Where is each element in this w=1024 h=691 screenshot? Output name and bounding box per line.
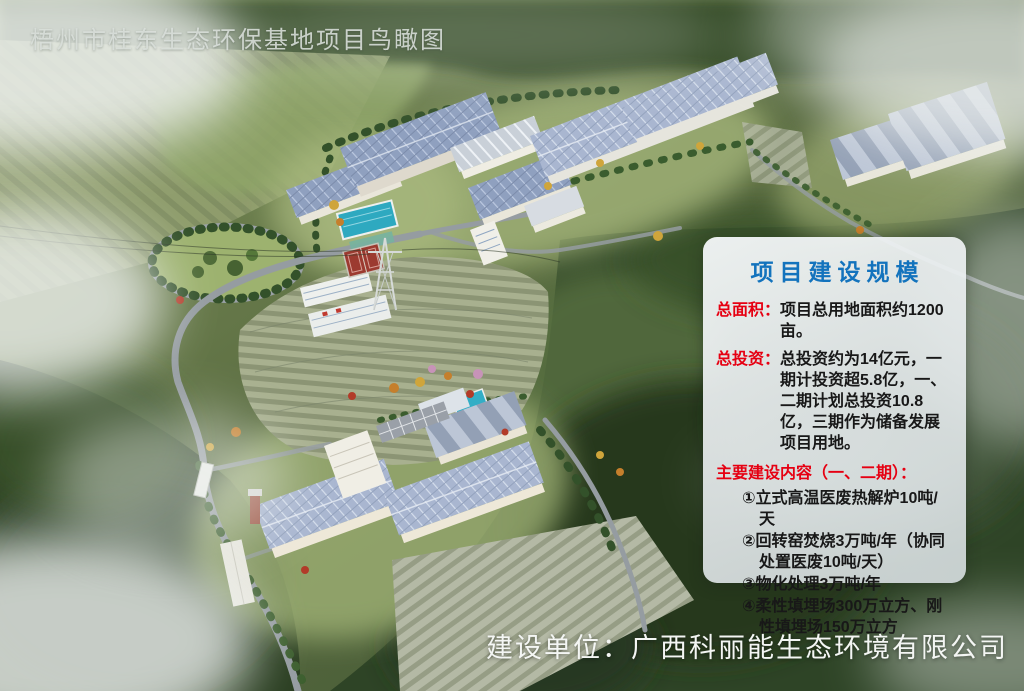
investment-label: 总投资：: [716, 349, 780, 454]
project-poster: 梧州市桂东生态环保基地项目鸟瞰图 项目建设规模 总面积： 项目总用地面积约120…: [0, 0, 1024, 691]
construction-item: ①立式高温医废热解炉10吨/天: [742, 488, 953, 530]
investment-text: 总投资约为14亿元，一期计投资超5.8亿，一、二期计划总投资10.8亿，三期作为…: [780, 349, 953, 454]
info-panel: 项目建设规模 总面积： 项目总用地面积约1200亩。 总投资： 总投资约为14亿…: [703, 237, 966, 583]
page-title: 梧州市桂东生态环保基地项目鸟瞰图: [30, 20, 446, 55]
builder-credit: 建设单位：广西科丽能生态环境有限公司: [486, 626, 1008, 665]
construction-content-heading: 主要建设内容（一、二期）：: [716, 463, 953, 484]
construction-items: ①立式高温医废热解炉10吨/天 ②回转窑焚烧3万吨/年（协同处置医废10吨/天）…: [716, 488, 953, 638]
investment-row: 总投资： 总投资约为14亿元，一期计投资超5.8亿，一、二期计划总投资10.8亿…: [716, 349, 953, 454]
area-label: 总面积：: [716, 300, 780, 342]
area-row: 总面积： 项目总用地面积约1200亩。: [716, 300, 953, 342]
construction-item: ③物化处理3万吨/年: [742, 574, 953, 595]
panel-title: 项目建设规模: [716, 253, 953, 287]
construction-item: ②回转窑焚烧3万吨/年（协同处置医废10吨/天）: [742, 531, 953, 573]
area-text: 项目总用地面积约1200亩。: [780, 300, 953, 342]
